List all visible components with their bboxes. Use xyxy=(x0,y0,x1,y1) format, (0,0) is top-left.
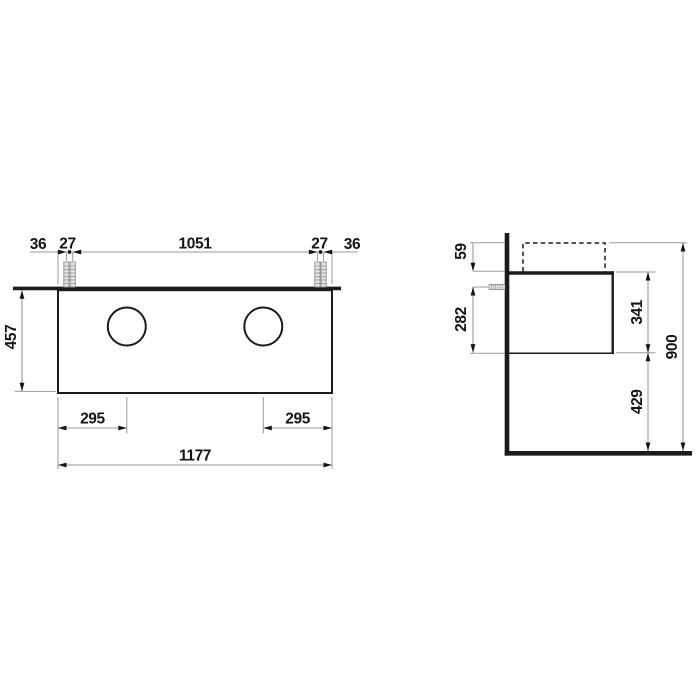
side-view: 59 282 341 429 900 xyxy=(453,233,692,456)
arrowhead-icon xyxy=(20,290,25,299)
arrowhead-icon xyxy=(646,272,651,281)
arrowhead-icon xyxy=(118,426,127,431)
side-left-dimensions: 59 282 xyxy=(453,243,505,354)
dim-label-overall-width: 1177 xyxy=(179,448,211,465)
arrowhead-icon xyxy=(471,287,476,296)
dim-label-bolt-gap-left: 27 xyxy=(59,236,75,253)
dim-label-edge-to-bolt-right: 36 xyxy=(344,236,361,253)
arrowhead-icon xyxy=(471,263,476,272)
arrowhead-icon xyxy=(471,344,476,353)
mounting-bolt-icon xyxy=(321,262,326,287)
dim-label-overall-height: 457 xyxy=(3,325,20,350)
drawing-canvas: 36 27 1051 27 36 457 295 295 1177 xyxy=(0,0,700,700)
arrowhead-icon xyxy=(681,243,686,252)
dim-label-bolt-gap-right: 27 xyxy=(311,236,327,253)
washbasin-clearance-dashed-outline xyxy=(523,243,605,272)
front-top-dimension-chain: 36 27 1051 27 36 xyxy=(30,236,361,285)
dim-label-edge-to-bolt-left: 36 xyxy=(30,236,47,253)
dim-label-anchor-to-bottom: 282 xyxy=(453,307,470,332)
dim-label-basin-left: 295 xyxy=(80,411,105,428)
dim-label-bolt-span: 1051 xyxy=(179,236,213,253)
basin-hole-left xyxy=(108,308,146,346)
dim-label-rim-height: 900 xyxy=(664,335,681,360)
arrowhead-icon xyxy=(20,383,25,392)
dim-label-basin-right: 295 xyxy=(285,411,310,428)
mounting-bolt-icon xyxy=(64,262,69,287)
dim-label-cabinet-height: 341 xyxy=(629,299,646,324)
front-height-dimension: 457 xyxy=(3,290,56,391)
arrowhead-icon xyxy=(263,426,272,431)
dim-label-top-to-anchor: 59 xyxy=(453,243,470,260)
arrowhead-icon xyxy=(646,443,651,452)
arrowhead-icon xyxy=(681,443,686,452)
mounting-bolt-icon xyxy=(70,262,75,287)
front-bottom-dimensions: 295 295 1177 xyxy=(58,397,332,469)
vanity-technical-drawing: 36 27 1051 27 36 457 295 295 1177 xyxy=(0,0,700,700)
cabinet-front-outline xyxy=(58,290,332,393)
arrowhead-icon xyxy=(646,353,651,362)
mounting-bolt-icon xyxy=(315,262,320,287)
basin-hole-right xyxy=(244,308,282,346)
arrowhead-icon xyxy=(646,344,651,353)
side-right-dimensions: 341 429 900 xyxy=(609,243,687,451)
dim-label-floor-clearance: 429 xyxy=(629,389,646,414)
front-view: 36 27 1051 27 36 457 295 295 1177 xyxy=(3,236,361,470)
arrowhead-icon xyxy=(58,426,67,431)
arrowhead-icon xyxy=(324,426,333,431)
wall-anchor-bolt-icon xyxy=(489,284,505,289)
arrowhead-icon xyxy=(58,463,67,468)
arrowhead-icon xyxy=(324,463,333,468)
